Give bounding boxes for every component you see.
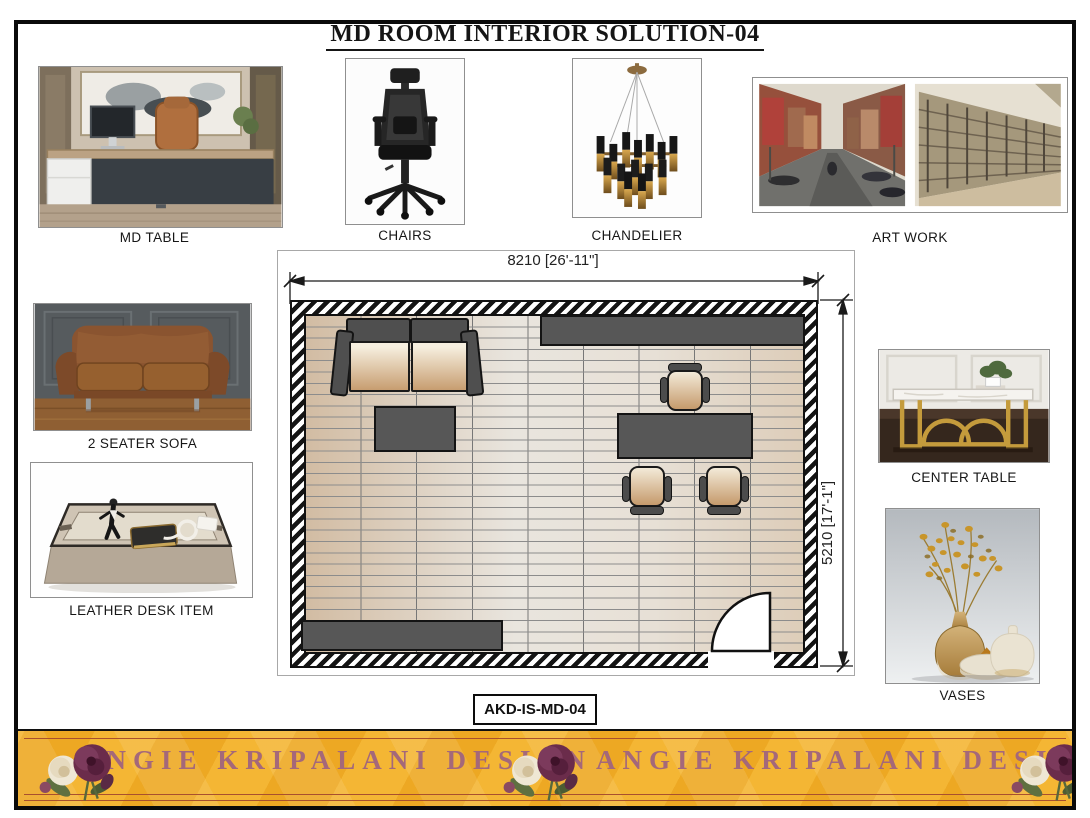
brand-name-right: ANGIE KRIPALANI DESIGN — [596, 745, 1036, 776]
chairs-photo — [345, 58, 465, 225]
flower-cluster-left-icon — [24, 733, 134, 806]
leather-desk-item-label: LEATHER DESK ITEM — [30, 603, 253, 618]
art-work-label: ART WORK — [752, 230, 1068, 245]
md-table-illustration — [39, 67, 282, 227]
md-table-photo — [38, 66, 283, 228]
vases-label: VASES — [885, 688, 1040, 703]
drawing-code-box: AKD-IS-MD-04 — [473, 694, 597, 725]
vases-illustration — [886, 509, 1039, 683]
art-work-illustration — [753, 78, 1067, 212]
presentation-page: MD ROOM INTERIOR SOLUTION-04 — [0, 0, 1090, 818]
chairs-label: CHAIRS — [345, 228, 465, 243]
flower-cluster-center-icon — [488, 733, 598, 806]
drawing-code-text: AKD-IS-MD-04 — [484, 701, 586, 718]
vases-photo — [885, 508, 1040, 684]
leather-tray-illustration — [31, 463, 252, 597]
center-table-label: CENTER TABLE — [878, 470, 1050, 485]
center-table-photo — [878, 349, 1050, 463]
page-title: MD ROOM INTERIOR SOLUTION-04 — [0, 21, 1090, 51]
center-table-illustration — [879, 350, 1049, 462]
plan-height-dimension: 5210 [17'-1"] — [818, 428, 838, 618]
two-seater-sofa-label: 2 SEATER SOFA — [33, 436, 252, 451]
chandelier-photo — [572, 58, 702, 218]
flower-cluster-right-icon — [996, 733, 1072, 806]
md-table-label: MD TABLE — [38, 230, 271, 245]
office-chair-illustration — [346, 59, 464, 224]
two-seater-sofa-photo — [33, 303, 252, 431]
art-work-photo — [752, 77, 1068, 213]
brand-name-left: ANGIE KRIPALANI DESIGN — [80, 745, 520, 776]
leather-desk-item-photo — [30, 462, 253, 598]
chandelier-label: CHANDELIER — [572, 228, 702, 243]
plan-dimension-lines — [277, 250, 855, 676]
brand-banner: ANGIE KRIPALANI DESIGN ANGIE KRIPALANI D… — [18, 729, 1072, 806]
page-title-text: MD ROOM INTERIOR SOLUTION-04 — [326, 21, 763, 51]
chandelier-illustration — [573, 59, 701, 217]
sofa-illustration — [34, 304, 251, 430]
